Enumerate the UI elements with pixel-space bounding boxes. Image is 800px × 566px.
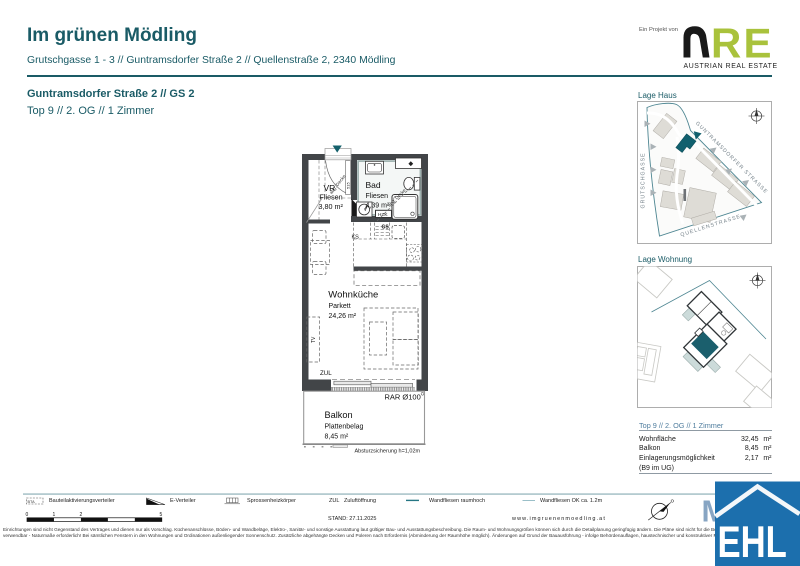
svg-text:RE: RE	[711, 20, 774, 67]
svg-text:2: 2	[80, 512, 83, 518]
svg-text:5: 5	[160, 512, 163, 518]
svg-text:HZK: HZK	[378, 212, 388, 218]
svg-text:515: 515	[345, 182, 350, 189]
svg-text:RAR Ø100: RAR Ø100	[385, 392, 421, 401]
svg-text:Bad: Bad	[366, 180, 381, 190]
svg-text:Parkett: Parkett	[329, 303, 351, 310]
svg-text:AUSTRIAN REAL ESTATE: AUSTRIAN REAL ESTATE	[684, 63, 778, 70]
svg-text:TV: TV	[311, 336, 317, 343]
svg-text:EHL: EHL	[718, 518, 787, 566]
svg-text:KS: KS	[352, 235, 360, 241]
svg-text:Balkon: Balkon	[325, 410, 353, 420]
svg-text:24,26 m²: 24,26 m²	[329, 313, 357, 320]
svg-text:GRUTSCHGASSE: GRUTSCHGASSE	[641, 152, 647, 208]
svg-text:ZUL: ZUL	[320, 370, 332, 377]
svg-text:0: 0	[26, 512, 29, 518]
svg-text:BTA: BTA	[28, 500, 36, 504]
svg-text:8,45 m²: 8,45 m²	[325, 433, 349, 440]
svg-text:Fliesen: Fliesen	[366, 193, 389, 200]
svg-text:Fliesen: Fliesen	[320, 192, 343, 201]
svg-text:Wohnküche: Wohnküche	[328, 290, 378, 301]
svg-text:Plattenbelag: Plattenbelag	[325, 423, 364, 430]
svg-text:Absturzsicherung h=1,02m: Absturzsicherung h=1,02m	[355, 449, 421, 455]
svg-text:1: 1	[53, 512, 56, 518]
svg-text:3,80 m²: 3,80 m²	[319, 202, 344, 211]
svg-text:GS: GS	[382, 225, 390, 231]
svg-text:4,39 m²: 4,39 m²	[366, 203, 390, 210]
